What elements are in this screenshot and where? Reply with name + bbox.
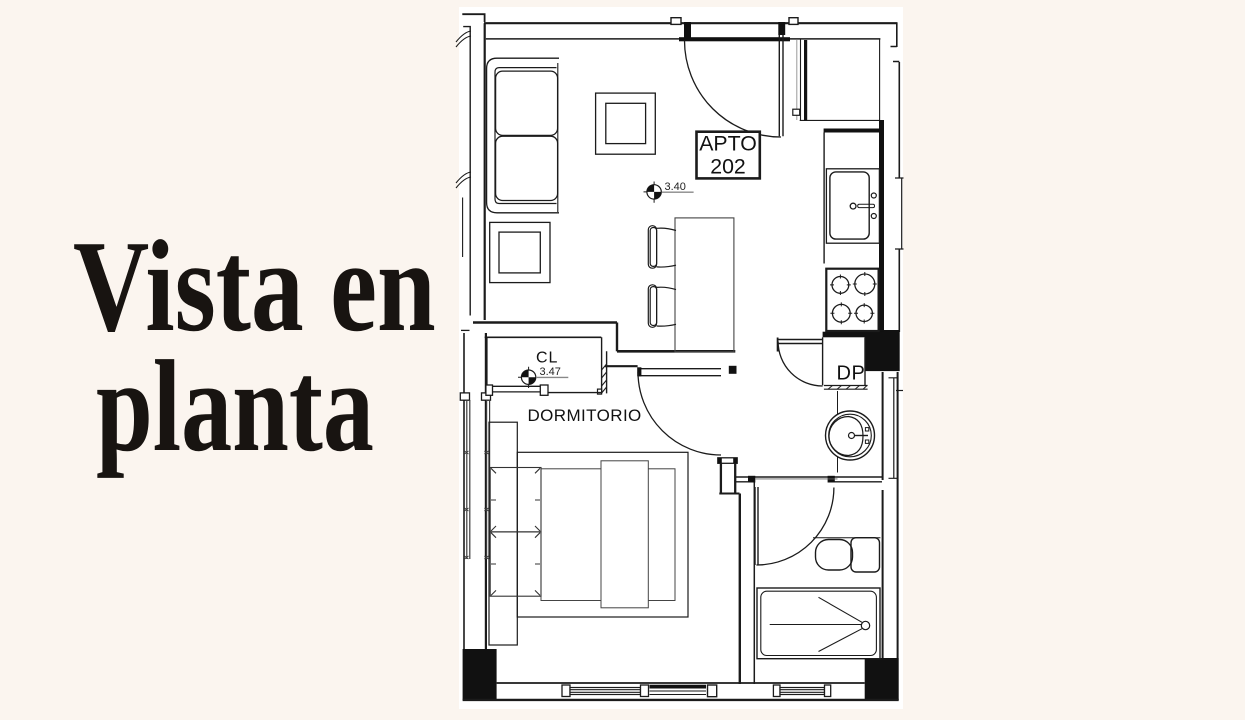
svg-text:DP: DP (837, 363, 866, 385)
svg-text:CL: CL (536, 350, 558, 367)
svg-text:APTO: APTO (699, 132, 757, 156)
svg-text:3.47: 3.47 (540, 366, 561, 378)
svg-text:3.40: 3.40 (665, 181, 686, 193)
svg-text:202: 202 (710, 155, 746, 179)
svg-text:DORMITORIO: DORMITORIO (528, 406, 642, 425)
